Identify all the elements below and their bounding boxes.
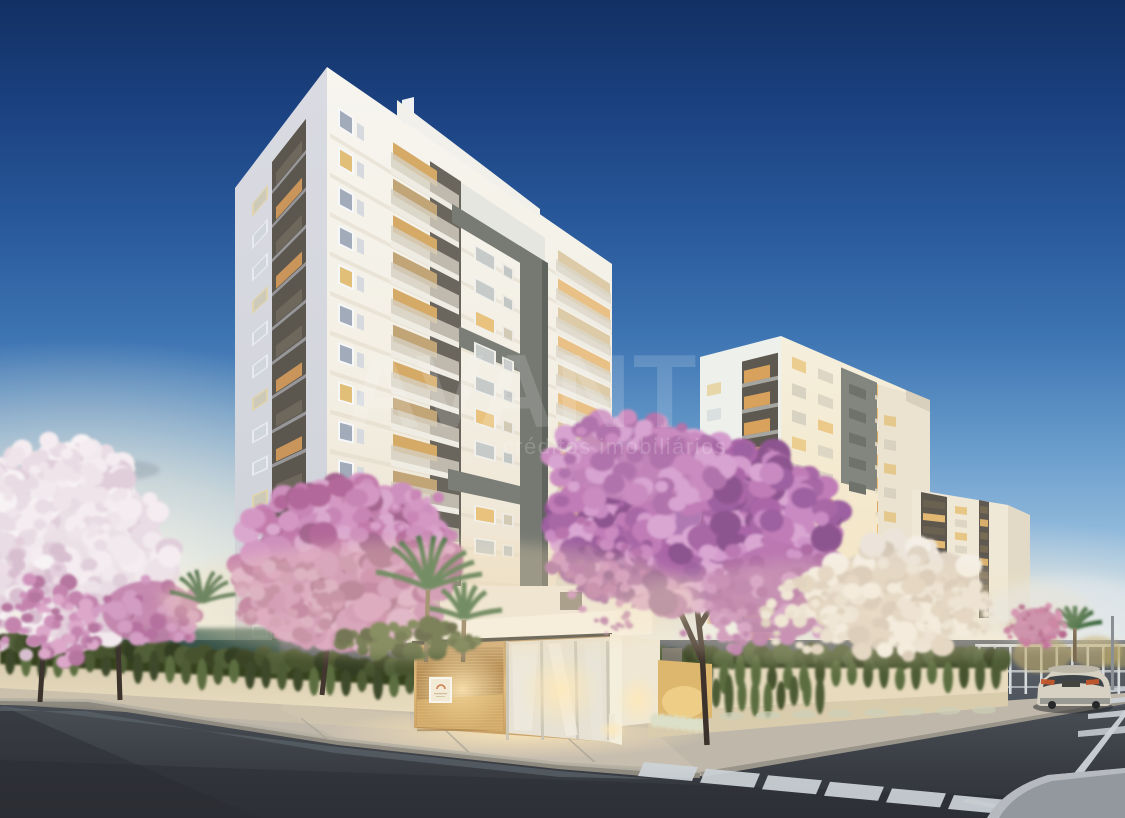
svg-text:créditos imobiliários: créditos imobiliários	[503, 434, 728, 459]
svg-text:AVANT: AVANT	[346, 334, 699, 450]
